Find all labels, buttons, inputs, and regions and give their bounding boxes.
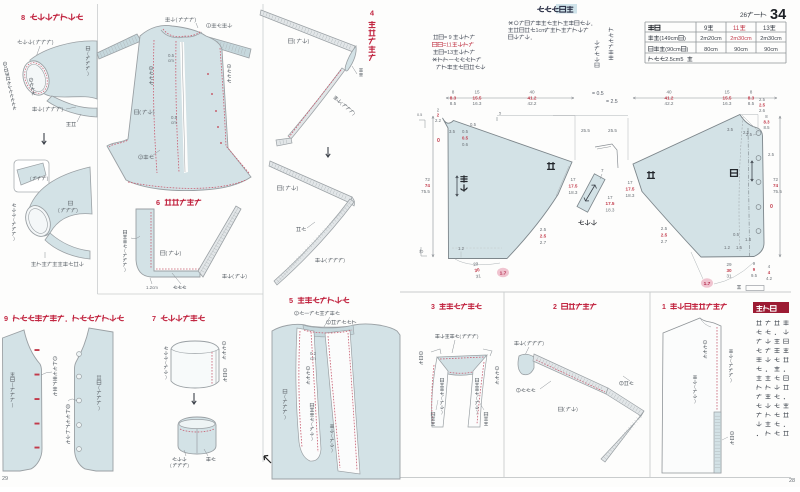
- svg-text:2.2: 2.2: [435, 118, 442, 123]
- svg-text:80cm: 80cm: [704, 47, 718, 53]
- svg-text:5: 5: [289, 296, 293, 305]
- svg-text:1.5: 1.5: [736, 245, 743, 250]
- svg-text:4.2: 4.2: [766, 276, 773, 281]
- svg-text:(: (: [176, 18, 178, 24]
- svg-text:0.5: 0.5: [417, 113, 422, 117]
- svg-text:2.5: 2.5: [661, 226, 668, 231]
- svg-text:1: 1: [223, 341, 225, 345]
- svg-text:42.2: 42.2: [665, 101, 674, 106]
- svg-text:18.3: 18.3: [606, 207, 615, 212]
- svg-text:15: 15: [474, 90, 480, 95]
- svg-text:34: 34: [770, 7, 786, 23]
- svg-text:2m20cm: 2m20cm: [700, 36, 722, 42]
- svg-text:30: 30: [726, 268, 732, 273]
- svg-text:28: 28: [789, 478, 795, 484]
- svg-text:): ): [52, 40, 54, 46]
- svg-text:25.5: 25.5: [608, 128, 617, 133]
- svg-text:=11: =11: [443, 43, 452, 49]
- svg-text:0.5: 0.5: [462, 129, 469, 134]
- svg-text:0.6: 0.6: [462, 142, 469, 147]
- svg-text:7: 7: [54, 357, 56, 361]
- svg-text:17.5: 17.5: [626, 187, 635, 192]
- svg-text:18.3: 18.3: [626, 193, 635, 198]
- svg-text:17.5: 17.5: [569, 184, 578, 189]
- svg-text:29: 29: [2, 476, 8, 482]
- svg-text:): ): [61, 107, 63, 113]
- svg-text:16.3: 16.3: [473, 101, 482, 106]
- svg-text:cm: cm: [168, 58, 174, 63]
- svg-text:15: 15: [724, 90, 730, 95]
- svg-text:cm: cm: [310, 356, 316, 361]
- svg-text:2: 2: [224, 368, 226, 372]
- svg-text:2.5: 2.5: [768, 152, 775, 157]
- svg-text:40: 40: [666, 90, 672, 95]
- svg-text:1.7: 1.7: [704, 281, 711, 287]
- svg-text:17.5: 17.5: [606, 201, 615, 206]
- svg-text:41.2: 41.2: [665, 95, 674, 100]
- svg-text:2.5: 2.5: [746, 132, 753, 137]
- svg-text:1.2: 1.2: [724, 245, 731, 250]
- svg-text:8.5: 8.5: [748, 101, 755, 106]
- svg-text:=13: =13: [444, 50, 453, 56]
- svg-text:0: 0: [770, 204, 773, 210]
- svg-text:72: 72: [425, 177, 431, 182]
- svg-text:2.7: 2.7: [661, 239, 668, 244]
- svg-text:7: 7: [152, 314, 156, 323]
- svg-text:1: 1: [208, 24, 210, 28]
- svg-text:0: 0: [437, 138, 440, 144]
- svg-text:8.5: 8.5: [764, 125, 771, 130]
- svg-text:8: 8: [750, 90, 753, 95]
- svg-text:72: 72: [773, 177, 779, 182]
- svg-text:6: 6: [67, 405, 69, 409]
- svg-text:1: 1: [307, 366, 309, 370]
- svg-text:8.5: 8.5: [450, 101, 457, 106]
- svg-text:2.6: 2.6: [759, 108, 766, 113]
- svg-text:42.2: 42.2: [528, 101, 537, 106]
- svg-text:): ): [194, 18, 196, 24]
- svg-text:3.5: 3.5: [449, 129, 456, 134]
- svg-text:(: (: [283, 186, 285, 192]
- svg-text:8.3: 8.3: [450, 95, 457, 100]
- svg-text:9.5: 9.5: [751, 273, 758, 278]
- svg-text:3: 3: [431, 304, 435, 311]
- svg-text:8.3: 8.3: [748, 95, 755, 100]
- svg-text:2: 2: [553, 304, 557, 311]
- svg-text:0.5: 0.5: [470, 122, 477, 127]
- svg-text:= 2.5: = 2.5: [606, 99, 618, 105]
- svg-text:15.5: 15.5: [473, 95, 482, 100]
- svg-text:29: 29: [726, 262, 732, 267]
- svg-text:1.7: 1.7: [500, 271, 507, 277]
- svg-text:2.5cm5: 2.5cm5: [665, 57, 683, 63]
- svg-text:8: 8: [452, 90, 455, 95]
- svg-text:18.3: 18.3: [569, 190, 578, 195]
- svg-text:= 0.5: = 0.5: [592, 91, 604, 97]
- svg-text:26: 26: [740, 12, 748, 19]
- svg-text:2: 2: [620, 381, 622, 385]
- svg-text:2.7: 2.7: [540, 240, 547, 245]
- svg-text:90cm: 90cm: [734, 47, 748, 53]
- svg-text:9: 9: [4, 314, 8, 323]
- svg-text:cm: cm: [171, 120, 177, 125]
- svg-text:): ): [153, 110, 155, 116]
- svg-text:(: (: [43, 107, 45, 113]
- svg-text:2: 2: [731, 431, 733, 435]
- svg-text:1.4: 1.4: [745, 237, 752, 242]
- svg-text:74: 74: [773, 183, 779, 188]
- svg-text:(90cm: (90cm: [665, 47, 681, 53]
- svg-text:17: 17: [627, 180, 633, 185]
- svg-text:4: 4: [228, 64, 230, 68]
- svg-text:40: 40: [529, 90, 535, 95]
- svg-text:16.3: 16.3: [723, 101, 732, 106]
- svg-text:(149cm: (149cm: [659, 36, 678, 42]
- svg-text:8: 8: [21, 13, 25, 22]
- svg-text:): ): [297, 186, 299, 192]
- svg-text:0.5: 0.5: [733, 232, 740, 237]
- svg-text:): ): [687, 47, 689, 53]
- svg-text:2.5: 2.5: [759, 103, 766, 108]
- svg-text:(: (: [33, 40, 35, 46]
- svg-text:2m30cm: 2m30cm: [760, 36, 782, 42]
- svg-text:1: 1: [662, 304, 666, 311]
- svg-text:2.5: 2.5: [661, 233, 668, 238]
- svg-text:9: 9: [150, 66, 152, 70]
- svg-text:7: 7: [601, 168, 604, 173]
- svg-text:0.5: 0.5: [462, 136, 469, 141]
- svg-text:): ): [180, 251, 182, 257]
- svg-text:8.3: 8.3: [764, 120, 771, 125]
- svg-text:1cm: 1cm: [536, 28, 547, 34]
- svg-text:41.2: 41.2: [528, 95, 537, 100]
- svg-text:): ): [684, 36, 686, 42]
- svg-text:17: 17: [570, 177, 576, 182]
- svg-text:(: (: [166, 251, 168, 257]
- svg-text:6: 6: [156, 198, 160, 207]
- svg-text:2: 2: [296, 311, 298, 315]
- svg-text:2.5: 2.5: [540, 227, 547, 232]
- svg-text:1: 1: [496, 366, 498, 370]
- svg-text:1.2: 1.2: [458, 246, 465, 251]
- svg-text:2m30cm: 2m30cm: [730, 36, 752, 42]
- svg-text:90cm: 90cm: [764, 47, 778, 53]
- svg-text:31: 31: [726, 274, 732, 279]
- svg-text:75.5: 75.5: [421, 189, 430, 194]
- svg-text:1.2cm: 1.2cm: [146, 285, 158, 290]
- svg-text:1: 1: [704, 340, 706, 344]
- svg-text:3.5: 3.5: [727, 127, 734, 132]
- svg-text:(: (: [139, 110, 141, 116]
- svg-text:2: 2: [140, 155, 142, 159]
- svg-text:(: (: [294, 39, 296, 45]
- svg-text:75.5: 75.5: [773, 189, 782, 194]
- svg-text:1: 1: [517, 388, 519, 392]
- svg-text:): ): [308, 39, 310, 45]
- svg-text:17: 17: [607, 195, 613, 200]
- svg-text:25.5: 25.5: [581, 128, 590, 133]
- svg-text:= 9: = 9: [444, 35, 452, 41]
- svg-text:74: 74: [425, 183, 431, 188]
- svg-text:わ: わ: [419, 248, 424, 254]
- svg-text:13: 13: [763, 26, 770, 32]
- svg-text:2.5: 2.5: [759, 97, 766, 102]
- svg-text:2: 2: [420, 351, 422, 355]
- svg-text:2.5: 2.5: [540, 234, 547, 239]
- svg-text:15.5: 15.5: [723, 95, 732, 100]
- svg-text:11: 11: [733, 26, 740, 32]
